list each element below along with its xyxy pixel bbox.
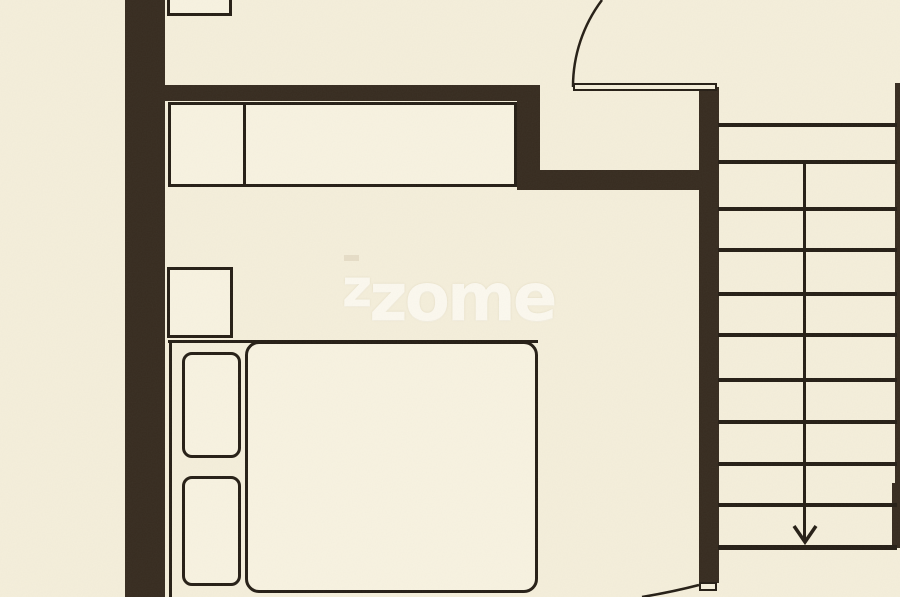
stair-tread xyxy=(718,248,897,252)
hallway-door-leaf xyxy=(573,83,717,91)
stair-tread xyxy=(718,503,897,507)
floor-plan: zzome xyxy=(0,0,900,597)
stair-tread xyxy=(718,462,897,466)
stairwell-right-wall-segment xyxy=(892,483,900,548)
stairs-direction-arrow-shaft xyxy=(803,163,806,540)
stairwell-left-wall xyxy=(699,87,719,583)
closet-cut-at-top-edge xyxy=(167,0,232,16)
hallway-door-swing-arc xyxy=(573,0,602,87)
stair-tread xyxy=(718,420,897,424)
bed-pillow-bottom xyxy=(182,476,241,586)
hallway-partition-wall xyxy=(517,170,700,190)
stair-tread xyxy=(718,160,897,164)
watermark-accent-bar xyxy=(344,255,359,261)
watermark-text: zome xyxy=(369,259,554,336)
stair-tread xyxy=(718,333,897,337)
watermark-first-letter: z xyxy=(342,259,369,319)
bottom-door-swing-arc xyxy=(642,585,699,597)
stair-tread xyxy=(718,545,897,550)
bottom-door-jamb xyxy=(699,582,717,591)
bedroom-top-wall xyxy=(165,85,540,101)
wardrobe-divider xyxy=(243,105,246,184)
bed-pillow-top xyxy=(182,352,241,458)
stair-tread xyxy=(718,123,897,127)
watermark: zzome xyxy=(342,263,555,325)
nightstand xyxy=(167,267,233,338)
stair-tread xyxy=(718,207,897,211)
stair-tread xyxy=(718,378,897,382)
left-exterior-wall xyxy=(125,0,165,597)
bed-duvet xyxy=(245,341,538,593)
wardrobe xyxy=(168,102,517,187)
stair-tread xyxy=(718,292,897,296)
bed-frame-left-edge xyxy=(169,343,172,597)
